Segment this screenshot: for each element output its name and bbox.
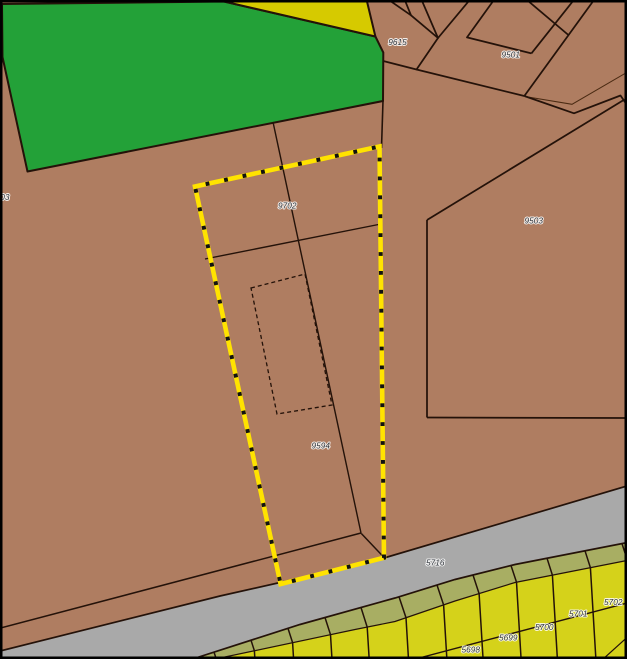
svg-text:9702: 9702 [278,201,297,211]
svg-text:9615: 9615 [388,37,407,47]
svg-text:5700: 5700 [535,622,554,632]
svg-text:9501: 9501 [502,50,520,60]
svg-text:9594: 9594 [312,441,331,451]
svg-text:5699: 5699 [499,633,518,643]
svg-text:5716: 5716 [426,558,445,568]
svg-text:5702: 5702 [604,597,623,607]
svg-text:5701: 5701 [569,609,587,619]
svg-text:5698: 5698 [462,645,481,655]
svg-text:9503: 9503 [525,216,544,226]
